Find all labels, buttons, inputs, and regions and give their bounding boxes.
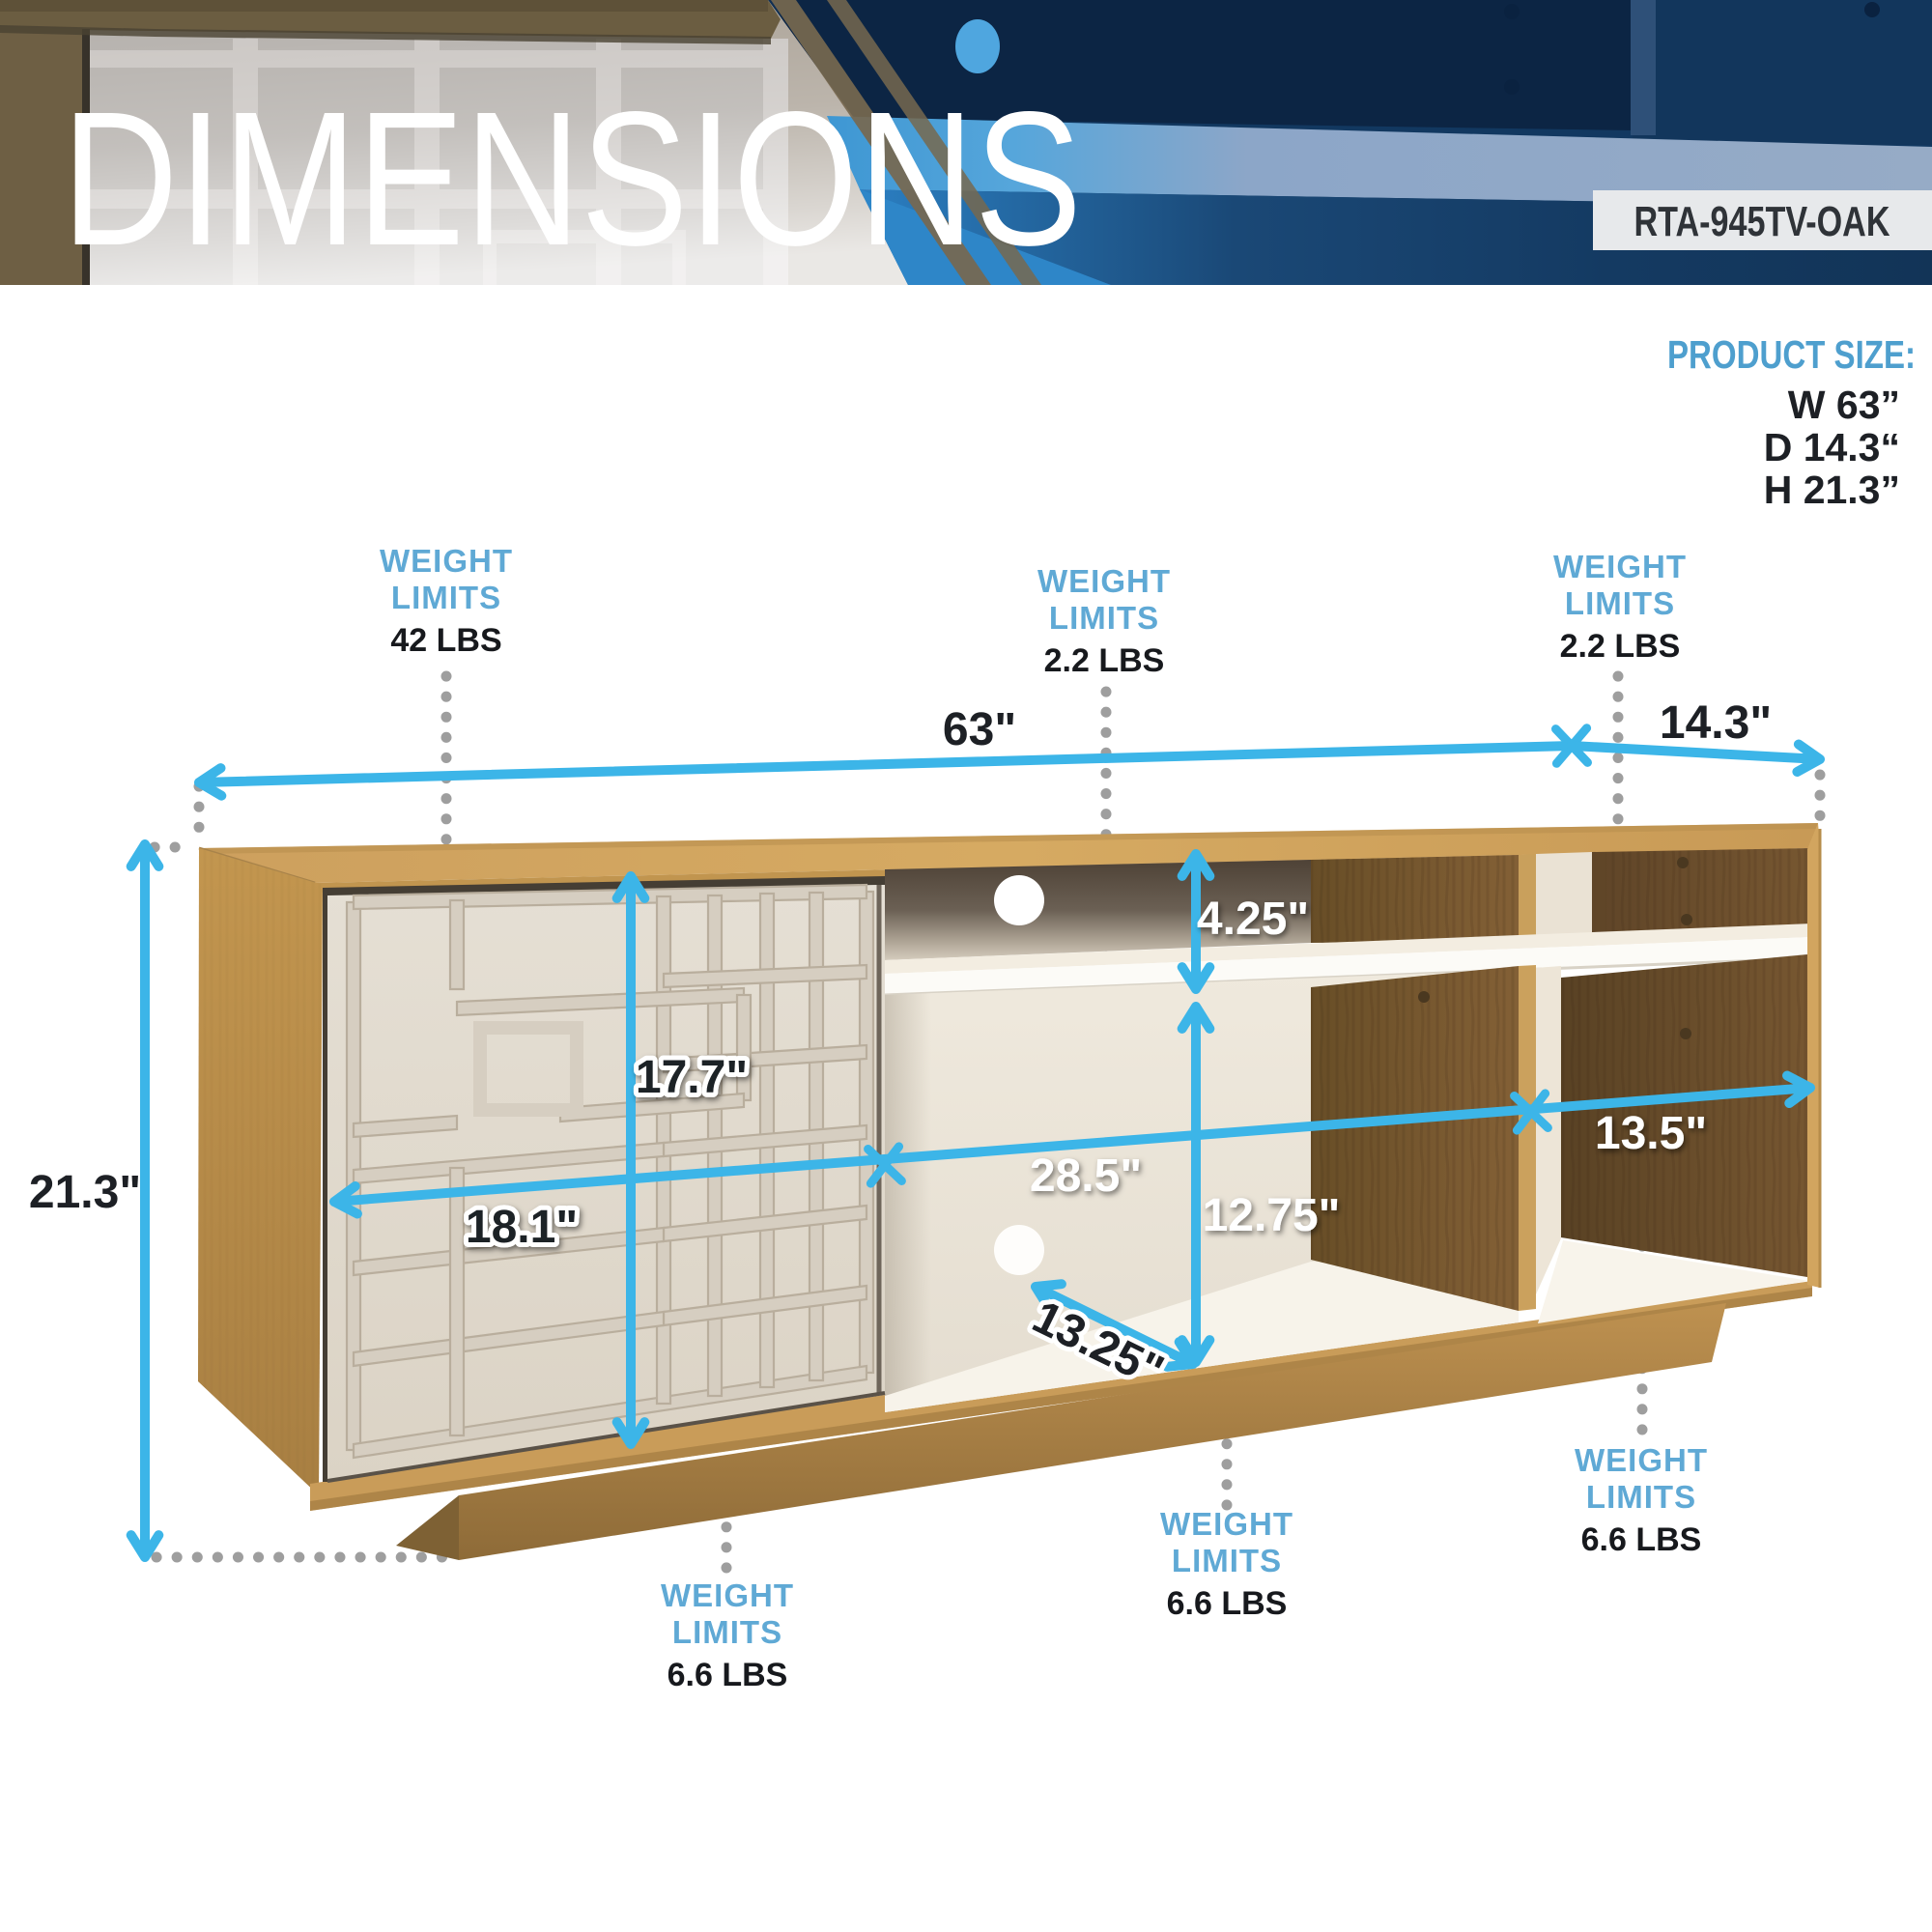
svg-text:WEIGHT: WEIGHT xyxy=(661,1577,794,1613)
svg-text:13.5": 13.5" xyxy=(1595,1108,1707,1159)
svg-text:LIMITS: LIMITS xyxy=(1172,1543,1282,1578)
svg-text:H 21.3”: H 21.3” xyxy=(1764,468,1900,512)
svg-text:2.2 LBS: 2.2 LBS xyxy=(1044,642,1165,679)
svg-text:63": 63" xyxy=(943,704,1016,755)
svg-text:6.6 LBS: 6.6 LBS xyxy=(668,1657,788,1693)
svg-text:WEIGHT: WEIGHT xyxy=(1553,549,1687,584)
svg-text:4.25": 4.25" xyxy=(1197,894,1309,945)
svg-text:LIMITS: LIMITS xyxy=(1565,585,1675,621)
svg-text:DIMENSIONS: DIMENSIONS xyxy=(62,72,1082,286)
svg-text:14.3": 14.3" xyxy=(1660,697,1772,749)
svg-text:WEIGHT: WEIGHT xyxy=(1037,563,1171,599)
svg-text:WEIGHT: WEIGHT xyxy=(1160,1506,1293,1542)
svg-text:18.1": 18.1" xyxy=(466,1202,578,1253)
svg-text:2.2 LBS: 2.2 LBS xyxy=(1560,628,1681,665)
svg-text:LIMITS: LIMITS xyxy=(1586,1479,1696,1515)
svg-text:12.75": 12.75" xyxy=(1203,1190,1341,1241)
svg-text:LIMITS: LIMITS xyxy=(672,1614,782,1650)
svg-text:WEIGHT: WEIGHT xyxy=(380,543,513,579)
svg-text:LIMITS: LIMITS xyxy=(391,580,501,615)
svg-text:21.3": 21.3" xyxy=(29,1167,141,1218)
svg-text:17.7": 17.7" xyxy=(636,1052,748,1103)
svg-text:6.6 LBS: 6.6 LBS xyxy=(1581,1521,1702,1558)
svg-text:RTA-945TV-OAK: RTA-945TV-OAK xyxy=(1634,198,1890,245)
svg-text:W 63”: W 63” xyxy=(1788,383,1900,427)
svg-text:42 LBS: 42 LBS xyxy=(390,622,501,659)
svg-text:LIMITS: LIMITS xyxy=(1049,600,1159,636)
svg-text:D 14.3“: D 14.3“ xyxy=(1764,425,1900,469)
svg-text:PRODUCT SIZE:: PRODUCT SIZE: xyxy=(1667,332,1916,377)
svg-text:WEIGHT: WEIGHT xyxy=(1575,1442,1708,1478)
svg-text:6.6 LBS: 6.6 LBS xyxy=(1167,1585,1288,1622)
svg-text:28.5": 28.5" xyxy=(1030,1151,1142,1202)
